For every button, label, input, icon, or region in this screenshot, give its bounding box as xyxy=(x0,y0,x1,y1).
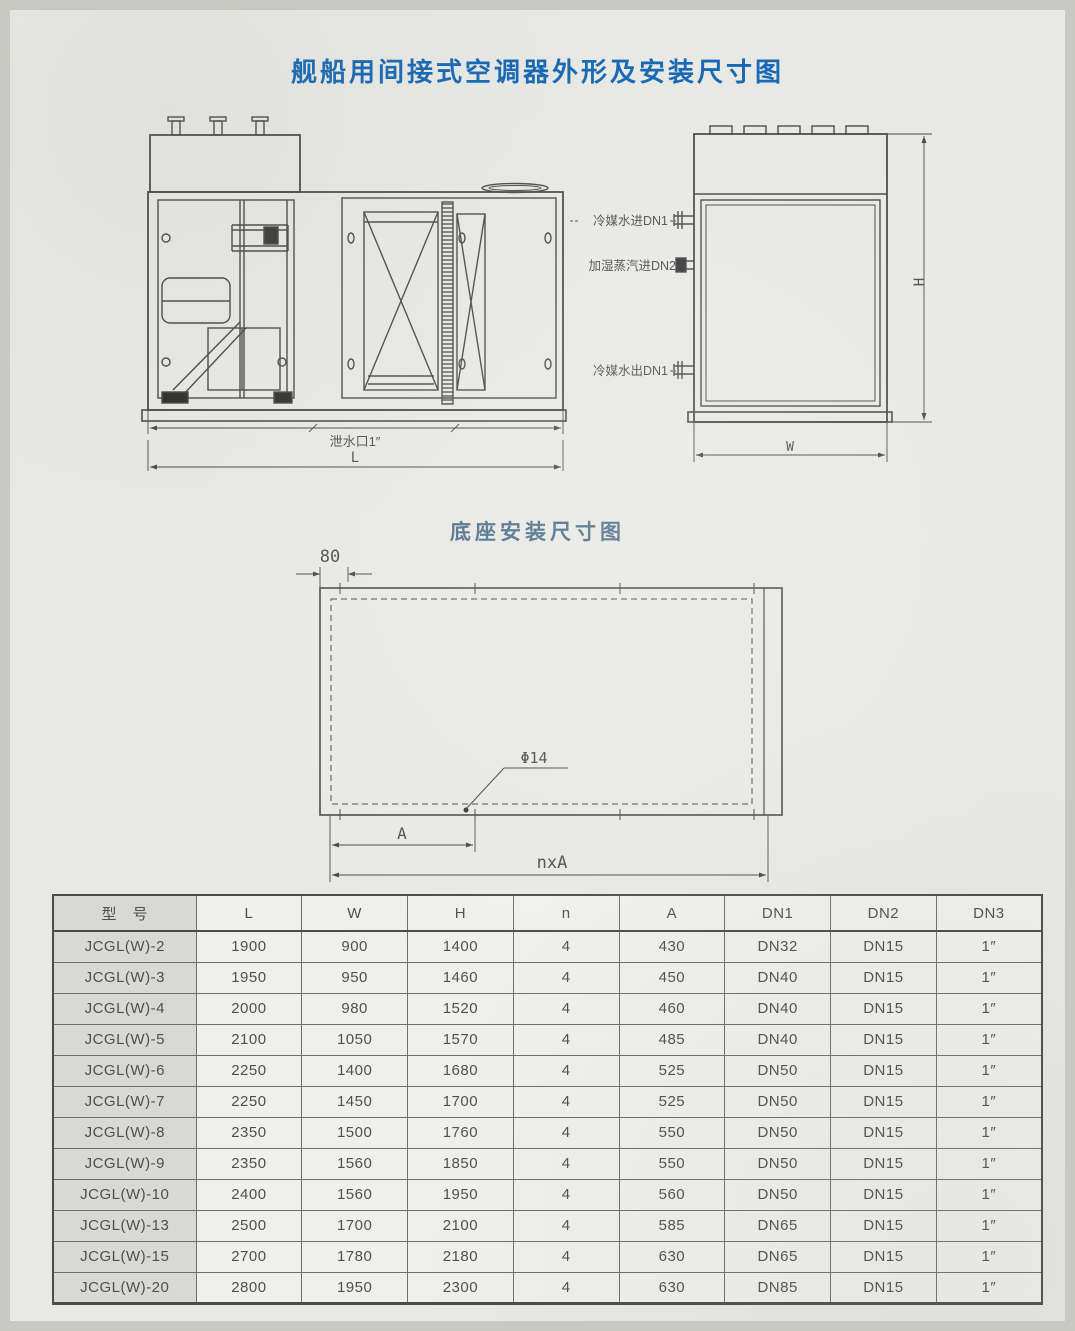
value-cell: 2000 xyxy=(196,993,302,1024)
table-row: JCGL(W)-72250145017004525DN50DN151″ xyxy=(53,1086,1042,1117)
value-cell: 2800 xyxy=(196,1272,302,1303)
value-cell: 1″ xyxy=(936,1210,1042,1241)
model-cell: JCGL(W)-8 xyxy=(53,1117,196,1148)
value-cell: 1780 xyxy=(302,1241,408,1272)
value-cell: 1″ xyxy=(936,962,1042,993)
value-cell: 450 xyxy=(619,962,725,993)
column-header: 型 号 xyxy=(53,895,196,931)
table-row: JCGL(W)-202800195023004630DN85DN151″ xyxy=(53,1272,1042,1303)
table-row: JCGL(W)-62250140016804525DN50DN151″ xyxy=(53,1055,1042,1086)
value-cell: DN15 xyxy=(831,931,937,962)
value-cell: 1450 xyxy=(302,1086,408,1117)
value-cell: 4 xyxy=(513,1086,619,1117)
value-cell: DN15 xyxy=(831,1241,937,1272)
value-cell: 1500 xyxy=(302,1117,408,1148)
value-cell: 485 xyxy=(619,1024,725,1055)
value-cell: 2350 xyxy=(196,1148,302,1179)
value-cell: 1″ xyxy=(936,1179,1042,1210)
column-header: DN1 xyxy=(725,895,831,931)
model-cell: JCGL(W)-13 xyxy=(53,1210,196,1241)
document-page: 舰船用间接式空调器外形及安装尺寸图 xyxy=(0,0,1075,1331)
outline-drawing: 泄水口1″ L 冷媒水进DN1 加湿蒸汽进DN2 冷媒水出DN1 xyxy=(10,110,1075,482)
top-lug-icons xyxy=(710,126,868,134)
model-cell: JCGL(W)-9 xyxy=(53,1148,196,1179)
value-cell: 1″ xyxy=(936,1148,1042,1179)
base-plan-drawing: 80 Φ14 A nxA xyxy=(10,510,1075,895)
value-cell: 1″ xyxy=(936,1086,1042,1117)
value-cell: 1560 xyxy=(302,1179,408,1210)
column-header: DN2 xyxy=(831,895,937,931)
height-dim-label: H xyxy=(912,278,928,286)
value-cell: 1″ xyxy=(936,1241,1042,1272)
column-header: W xyxy=(302,895,408,931)
value-cell: 585 xyxy=(619,1210,725,1241)
value-cell: 1950 xyxy=(408,1179,514,1210)
value-cell: 1″ xyxy=(936,931,1042,962)
value-cell: DN15 xyxy=(831,1117,937,1148)
value-cell: DN50 xyxy=(725,1055,831,1086)
model-cell: JCGL(W)-10 xyxy=(53,1179,196,1210)
value-cell: DN50 xyxy=(725,1117,831,1148)
value-cell: 550 xyxy=(619,1117,725,1148)
value-cell: 4 xyxy=(513,993,619,1024)
value-cell: 4 xyxy=(513,1272,619,1303)
value-cell: DN15 xyxy=(831,993,937,1024)
value-cell: 4 xyxy=(513,1148,619,1179)
value-cell: 1″ xyxy=(936,1117,1042,1148)
value-cell: 2100 xyxy=(196,1024,302,1055)
column-header: n xyxy=(513,895,619,931)
value-cell: 1700 xyxy=(408,1086,514,1117)
value-cell: 1520 xyxy=(408,993,514,1024)
value-cell: 1050 xyxy=(302,1024,408,1055)
value-cell: 1700 xyxy=(302,1210,408,1241)
table-row: JCGL(W)-132500170021004585DN65DN151″ xyxy=(53,1210,1042,1241)
length-dim-label: L xyxy=(351,450,359,466)
value-cell: 630 xyxy=(619,1272,725,1303)
spec-table: 型 号LWHnADN1DN2DN3 JCGL(W)-21900900140044… xyxy=(52,894,1043,1305)
value-cell: DN15 xyxy=(831,1024,937,1055)
value-cell: DN15 xyxy=(831,1272,937,1303)
value-cell: 2500 xyxy=(196,1210,302,1241)
value-cell: DN15 xyxy=(831,1086,937,1117)
value-cell: 1400 xyxy=(302,1055,408,1086)
value-cell: DN15 xyxy=(831,1210,937,1241)
value-cell: 4 xyxy=(513,1055,619,1086)
value-cell: DN40 xyxy=(725,993,831,1024)
value-cell: 1″ xyxy=(936,1055,1042,1086)
value-cell: DN40 xyxy=(725,962,831,993)
value-cell: 1950 xyxy=(302,1272,408,1303)
value-cell: 560 xyxy=(619,1179,725,1210)
edge-offset-label: 80 xyxy=(320,547,340,567)
model-cell: JCGL(W)-20 xyxy=(53,1272,196,1303)
value-cell: 4 xyxy=(513,1241,619,1272)
header-row: 型 号LWHnADN1DN2DN3 xyxy=(53,895,1042,931)
chilled-water-out-label: 冷媒水出DN1 xyxy=(593,364,668,378)
table-row: JCGL(W)-152700178021804630DN65DN151″ xyxy=(53,1241,1042,1272)
column-header: L xyxy=(196,895,302,931)
value-cell: 1″ xyxy=(936,1024,1042,1055)
value-cell: 2250 xyxy=(196,1055,302,1086)
value-cell: 2100 xyxy=(408,1210,514,1241)
column-header: DN3 xyxy=(936,895,1042,931)
column-header: A xyxy=(619,895,725,931)
value-cell: 4 xyxy=(513,962,619,993)
base-frame xyxy=(320,583,782,820)
hole-diameter-label: Φ14 xyxy=(520,749,547,767)
value-cell: 525 xyxy=(619,1055,725,1086)
front-view xyxy=(142,117,566,421)
value-cell: 1400 xyxy=(408,931,514,962)
value-cell: 1460 xyxy=(408,962,514,993)
model-cell: JCGL(W)-7 xyxy=(53,1086,196,1117)
table-row: JCGL(W)-102400156019504560DN50DN151″ xyxy=(53,1179,1042,1210)
value-cell: 2400 xyxy=(196,1179,302,1210)
value-cell: 550 xyxy=(619,1148,725,1179)
tank-fittings-icon xyxy=(168,117,268,135)
model-cell: JCGL(W)-15 xyxy=(53,1241,196,1272)
value-cell: DN40 xyxy=(725,1024,831,1055)
model-cell: JCGL(W)-3 xyxy=(53,962,196,993)
value-cell: DN15 xyxy=(831,1148,937,1179)
value-cell: DN32 xyxy=(725,931,831,962)
table-row: JCGL(W)-3195095014604450DN40DN151″ xyxy=(53,962,1042,993)
table-row: JCGL(W)-82350150017604550DN50DN151″ xyxy=(53,1117,1042,1148)
column-header: H xyxy=(408,895,514,931)
model-cell: JCGL(W)-4 xyxy=(53,993,196,1024)
value-cell: 525 xyxy=(619,1086,725,1117)
value-cell: 1570 xyxy=(408,1024,514,1055)
value-cell: 950 xyxy=(302,962,408,993)
value-cell: DN15 xyxy=(831,1055,937,1086)
table-row: JCGL(W)-92350156018504550DN50DN151″ xyxy=(53,1148,1042,1179)
table-row: JCGL(W)-4200098015204460DN40DN151″ xyxy=(53,993,1042,1024)
model-cell: JCGL(W)-2 xyxy=(53,931,196,962)
table-row: JCGL(W)-52100105015704485DN40DN151″ xyxy=(53,1024,1042,1055)
side-view xyxy=(674,126,892,422)
value-cell: 2250 xyxy=(196,1086,302,1117)
value-cell: 1950 xyxy=(196,962,302,993)
value-cell: DN65 xyxy=(725,1241,831,1272)
chilled-water-in-label: 冷媒水进DN1 xyxy=(593,214,668,228)
value-cell: 1900 xyxy=(196,931,302,962)
value-cell: DN15 xyxy=(831,1179,937,1210)
table-row: JCGL(W)-2190090014004430DN32DN151″ xyxy=(53,931,1042,962)
value-cell: 630 xyxy=(619,1241,725,1272)
value-cell: 900 xyxy=(302,931,408,962)
value-cell: 4 xyxy=(513,931,619,962)
model-cell: JCGL(W)-5 xyxy=(53,1024,196,1055)
value-cell: 1760 xyxy=(408,1117,514,1148)
value-cell: 4 xyxy=(513,1024,619,1055)
value-cell: 1″ xyxy=(936,993,1042,1024)
width-dim-label: W xyxy=(786,440,794,455)
value-cell: 1″ xyxy=(936,1272,1042,1303)
hole-callout xyxy=(464,768,569,813)
drain-label: 泄水口1″ xyxy=(330,434,381,449)
pitch-label: A xyxy=(397,824,407,843)
total-pitch-label: nxA xyxy=(537,853,568,873)
page-title: 舰船用间接式空调器外形及安装尺寸图 xyxy=(10,52,1065,89)
value-cell: 2350 xyxy=(196,1117,302,1148)
value-cell: 4 xyxy=(513,1179,619,1210)
value-cell: DN50 xyxy=(725,1086,831,1117)
value-cell: DN65 xyxy=(725,1210,831,1241)
value-cell: 2180 xyxy=(408,1241,514,1272)
value-cell: DN85 xyxy=(725,1272,831,1303)
value-cell: 430 xyxy=(619,931,725,962)
value-cell: 1850 xyxy=(408,1148,514,1179)
value-cell: 4 xyxy=(513,1210,619,1241)
steam-in-label: 加湿蒸汽进DN2 xyxy=(588,258,676,273)
value-cell: 4 xyxy=(513,1117,619,1148)
edge-offset-dim xyxy=(296,567,372,588)
value-cell: 2300 xyxy=(408,1272,514,1303)
value-cell: DN15 xyxy=(831,962,937,993)
model-cell: JCGL(W)-6 xyxy=(53,1055,196,1086)
value-cell: 1680 xyxy=(408,1055,514,1086)
value-cell: 460 xyxy=(619,993,725,1024)
value-cell: DN50 xyxy=(725,1179,831,1210)
value-cell: 1560 xyxy=(302,1148,408,1179)
pipe-stub-icons xyxy=(674,211,694,379)
value-cell: 2700 xyxy=(196,1241,302,1272)
value-cell: 980 xyxy=(302,993,408,1024)
value-cell: DN50 xyxy=(725,1148,831,1179)
